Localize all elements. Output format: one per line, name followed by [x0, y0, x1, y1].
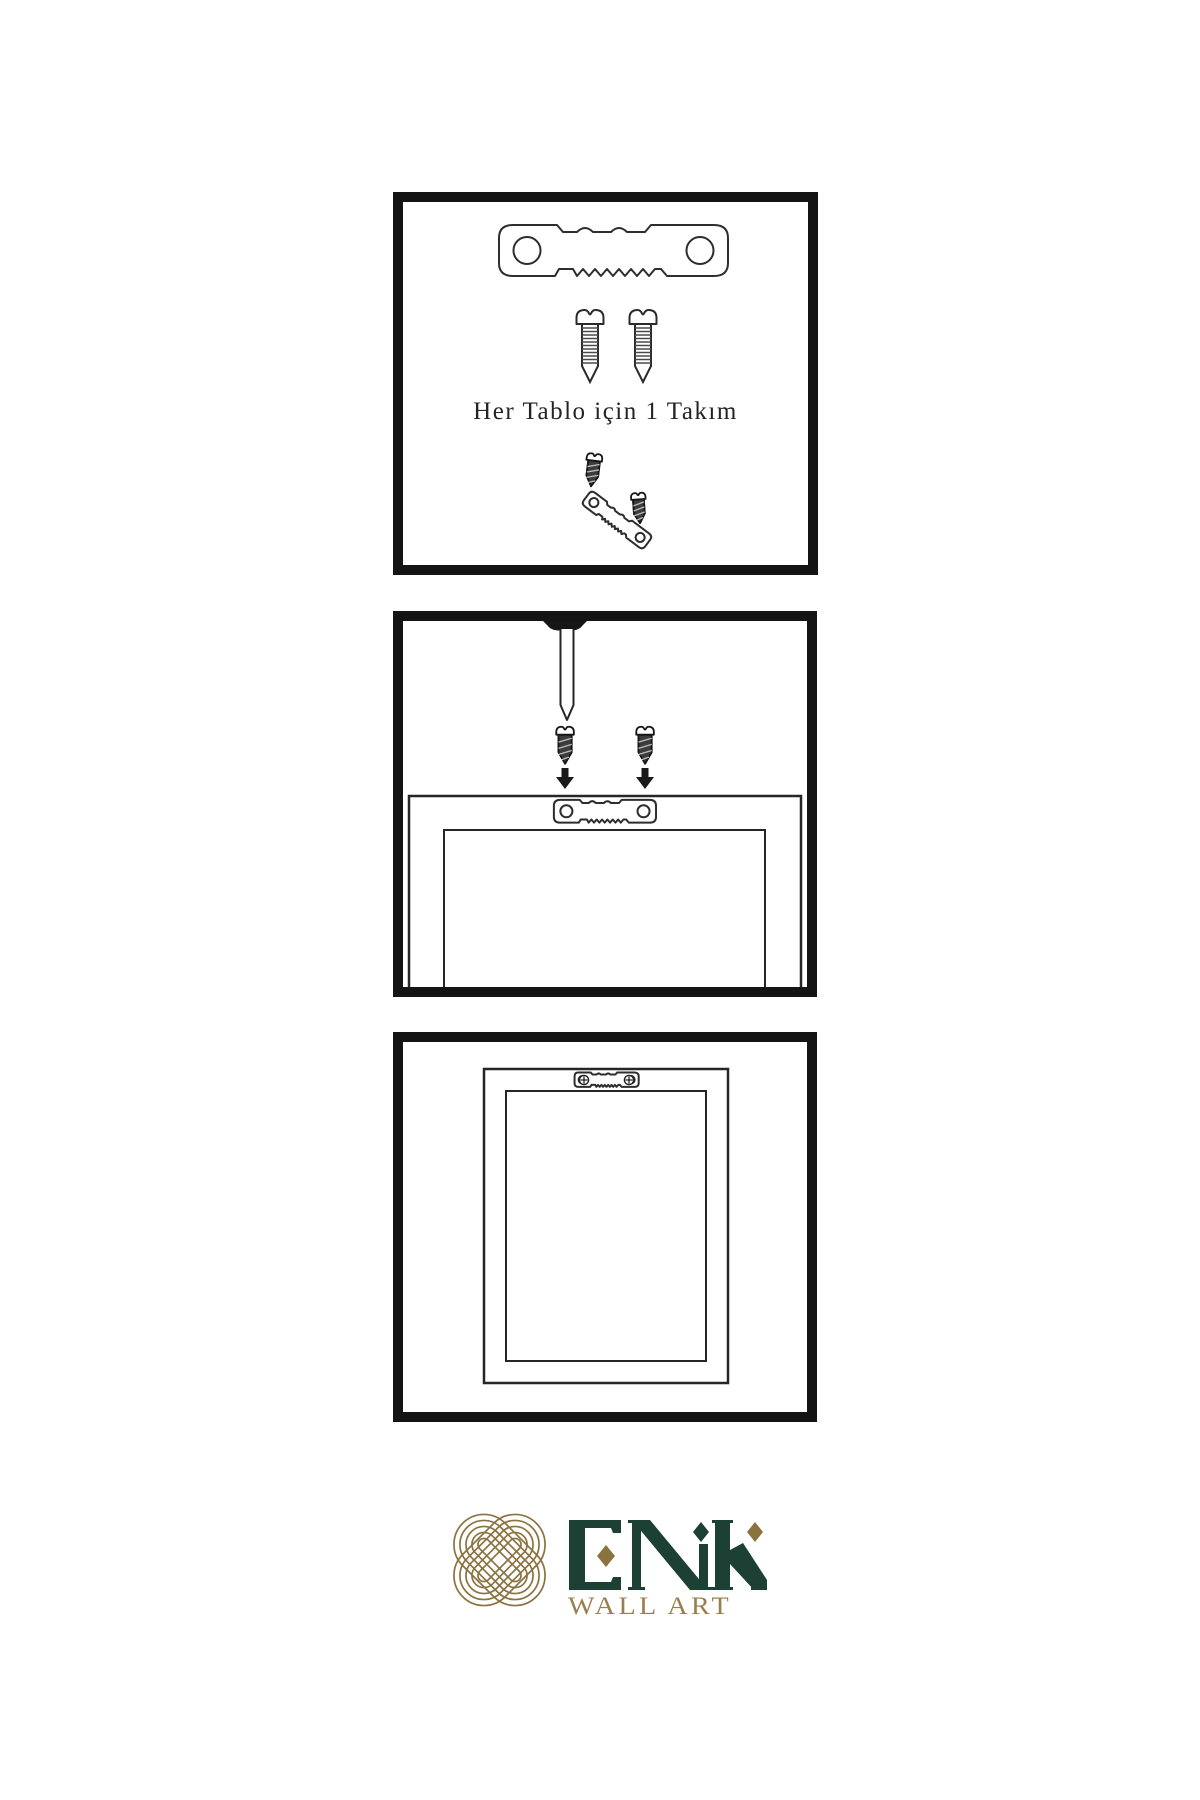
- panel-hardware-kit: Her Tablo için 1 Takım: [393, 192, 818, 575]
- frame-back-outline: [484, 1069, 728, 1383]
- frame-back-outline: [409, 796, 801, 987]
- panel-frame-back: [393, 1032, 817, 1422]
- sawtooth-hanger-icon: [554, 800, 656, 823]
- dark-screw-icon: [583, 453, 602, 487]
- install-illustration: [403, 621, 807, 987]
- hardware-kit-illustration: [403, 202, 808, 565]
- wall-nail-icon: [543, 621, 587, 720]
- frame-inner-outline: [444, 830, 765, 987]
- dark-screw-icon: [631, 492, 647, 523]
- dark-screw-icon: [636, 727, 654, 764]
- hanging-instruction-sheet: Her Tablo için 1 Takım: [0, 0, 1200, 1800]
- interlocking-knot-icon: [442, 1502, 558, 1618]
- kit-label: Her Tablo için 1 Takım: [403, 396, 808, 428]
- down-arrow-icon: [636, 768, 654, 789]
- screw-icon: [577, 310, 604, 382]
- brand-logo-graphic: WALL ART: [420, 1483, 780, 1633]
- dark-screw-icon: [556, 727, 574, 764]
- assembly-example: [581, 453, 653, 550]
- down-arrow-icon: [556, 768, 574, 789]
- brand-subtitle: WALL ART: [568, 1593, 732, 1620]
- diamond-accent-gold: [597, 1545, 615, 1567]
- diamond-accent-green: [693, 1522, 709, 1542]
- frame-inner-outline: [506, 1091, 706, 1361]
- sawtooth-hanger-icon: [499, 225, 728, 276]
- panel-attach-hanger: [393, 611, 817, 997]
- mounted-screw-head-icon: [579, 1075, 588, 1084]
- result-illustration: [403, 1042, 807, 1412]
- brand-logo: WALL ART: [420, 1483, 780, 1633]
- mounted-screw-head-icon: [624, 1075, 633, 1084]
- diamond-accent-gold: [747, 1522, 763, 1542]
- brand-wordmark: [569, 1520, 767, 1590]
- screw-icon: [630, 310, 657, 382]
